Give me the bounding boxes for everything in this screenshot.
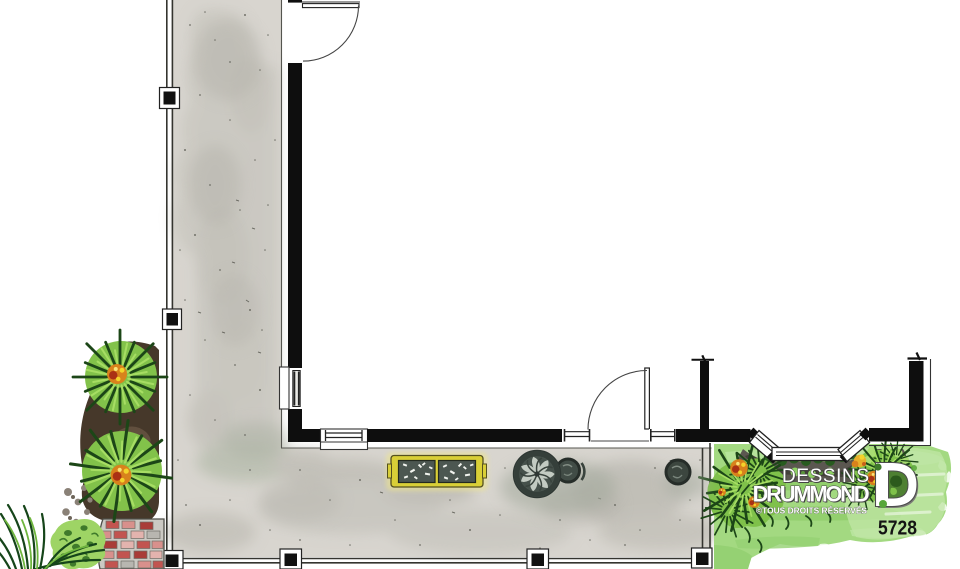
- svg-text:DRUMMOND: DRUMMOND: [753, 482, 870, 507]
- svg-text:©TOUS DROITS RÉSERVÉS: ©TOUS DROITS RÉSERVÉS: [756, 506, 867, 516]
- svg-text:5728: 5728: [878, 517, 917, 540]
